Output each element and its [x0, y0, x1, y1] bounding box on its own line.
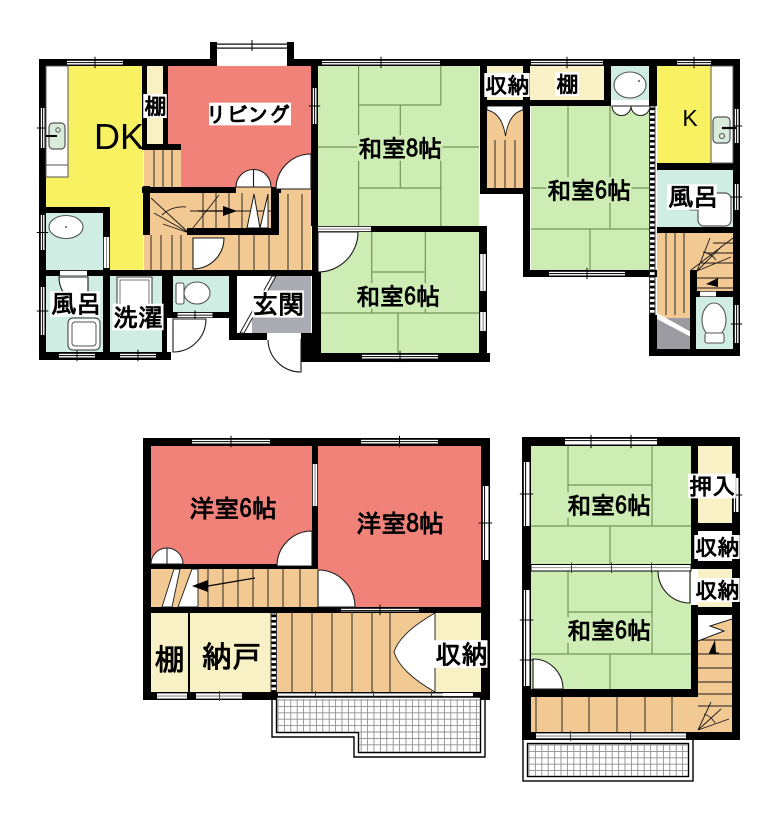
svg-text:K: K	[682, 105, 698, 131]
svg-text:DK: DK	[94, 116, 144, 157]
